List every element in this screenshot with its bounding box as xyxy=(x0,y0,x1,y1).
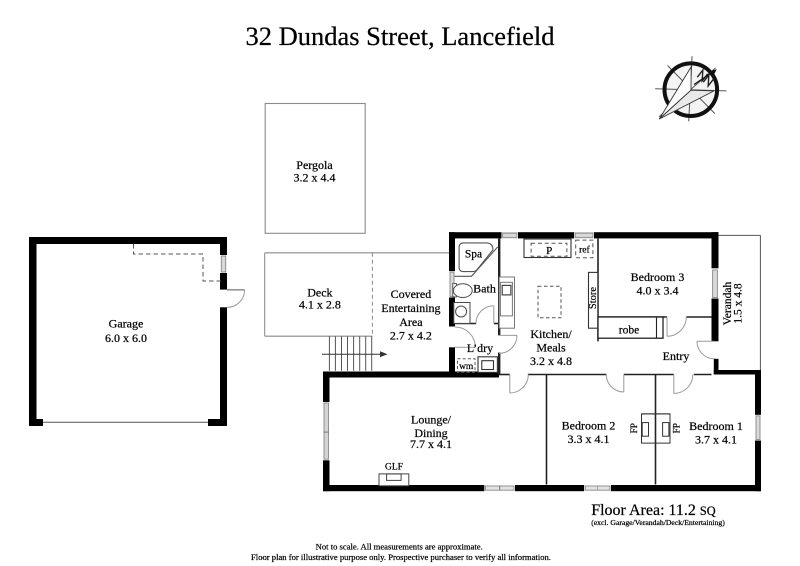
svg-text:Spa: Spa xyxy=(465,248,482,260)
svg-text:Floor plan for illustrative pu: Floor plan for illustrative purpose only… xyxy=(251,552,551,562)
svg-text:FP: FP xyxy=(630,423,640,433)
svg-text:P: P xyxy=(546,245,552,257)
svg-text:Pergola: Pergola xyxy=(296,158,333,172)
svg-text:4.0 x 3.4: 4.0 x 3.4 xyxy=(637,284,679,298)
svg-text:robe: robe xyxy=(619,324,639,336)
svg-text:Bedroom 1: Bedroom 1 xyxy=(689,419,743,433)
svg-text:3.2 x 4.4: 3.2 x 4.4 xyxy=(294,171,336,185)
svg-text:wm: wm xyxy=(459,362,474,372)
svg-text:3.7 x 4.1: 3.7 x 4.1 xyxy=(695,432,737,446)
svg-text:Garage: Garage xyxy=(109,317,144,331)
svg-text:Area: Area xyxy=(399,315,423,329)
svg-text:Bedroom 3: Bedroom 3 xyxy=(631,270,685,284)
svg-text:Store: Store xyxy=(588,287,599,310)
svg-text:32 Dundas Street, Lancefield: 32 Dundas Street, Lancefield xyxy=(245,21,554,51)
svg-text:Lounge/: Lounge/ xyxy=(411,412,452,426)
svg-text:GLF: GLF xyxy=(385,462,403,472)
svg-text:4.1 x 2.8: 4.1 x 2.8 xyxy=(299,298,341,312)
svg-text:Floor Area: 11.2 SQ: Floor Area: 11.2 SQ xyxy=(591,502,716,519)
svg-text:7.7 x 4.1: 7.7 x 4.1 xyxy=(410,437,452,451)
svg-text:Meals: Meals xyxy=(536,341,566,355)
svg-text:2.7 x 4.2: 2.7 x 4.2 xyxy=(390,329,432,343)
svg-text:Covered: Covered xyxy=(391,287,432,301)
svg-text:3.2 x 4.8: 3.2 x 4.8 xyxy=(530,354,572,368)
svg-text:FP: FP xyxy=(672,423,682,433)
svg-text:1.5 x 4.8: 1.5 x 4.8 xyxy=(732,283,744,324)
svg-text:Not to scale. All measurements: Not to scale. All measurements are appro… xyxy=(316,541,483,551)
svg-text:6.0 x 6.0: 6.0 x 6.0 xyxy=(105,331,147,345)
svg-text:3.3 x 4.1: 3.3 x 4.1 xyxy=(568,432,610,446)
svg-text:L’dry: L’dry xyxy=(467,341,493,355)
svg-text:Entertaining: Entertaining xyxy=(381,301,440,315)
svg-text:Kitchen/: Kitchen/ xyxy=(530,327,572,341)
svg-text:ref: ref xyxy=(579,244,590,255)
svg-text:Entry: Entry xyxy=(663,349,690,363)
svg-text:Bedroom 2: Bedroom 2 xyxy=(562,418,616,432)
svg-text:Bath: Bath xyxy=(473,282,496,296)
svg-text:(excl. Garage/Verandah/Deck/En: (excl. Garage/Verandah/Deck/Entertaining… xyxy=(591,518,725,527)
